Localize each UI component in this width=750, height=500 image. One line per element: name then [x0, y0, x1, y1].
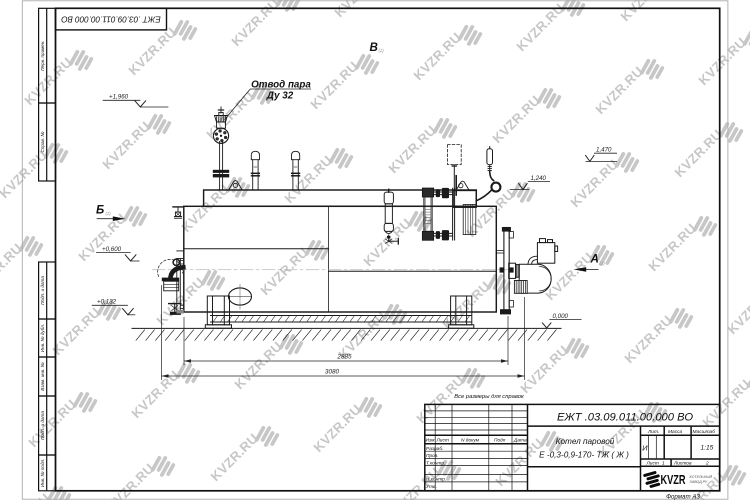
svg-text:Утв.: Утв. — [426, 484, 437, 490]
svg-text:1:15: 1:15 — [701, 445, 714, 452]
svg-text:(2): (2) — [106, 211, 112, 216]
svg-text:Листов: Листов — [673, 461, 692, 467]
svg-text:(2): (2) — [379, 48, 385, 53]
svg-text:+0,600: +0,600 — [102, 246, 122, 253]
svg-text:Инв. № дубл.: Инв. № дубл. — [40, 324, 45, 352]
svg-text:2885: 2885 — [336, 354, 352, 361]
svg-text:Пров.: Пров. — [426, 453, 439, 459]
svg-text:Инв. № подл.: Инв. № подл. — [40, 459, 45, 488]
svg-text:Дата: Дата — [513, 438, 527, 444]
svg-text:Н.контр.: Н.контр. — [426, 477, 446, 483]
svg-text:А: А — [590, 252, 599, 265]
svg-text:Разраб.: Разраб. — [426, 446, 443, 452]
svg-text:Котел паровой: Котел паровой — [556, 437, 615, 446]
svg-text:Лист: Лист — [646, 461, 659, 467]
svg-text:Подп. и дата: Подп. и дата — [40, 276, 45, 305]
svg-text:Все размеры для справок: Все размеры для справок — [454, 394, 524, 400]
svg-text:И: И — [642, 444, 648, 453]
svg-text:Лит.: Лит. — [647, 429, 659, 435]
svg-text:2: 2 — [705, 461, 709, 467]
svg-text:Взам. инв. №: Взам. инв. № — [40, 362, 45, 390]
svg-text:1: 1 — [662, 461, 665, 467]
svg-text:ЗАВОД.РУ: ЗАВОД.РУ — [690, 480, 708, 484]
svg-text:Подп. и дата: Подп. и дата — [40, 411, 45, 440]
svg-text:Ду 32: Ду 32 — [266, 90, 294, 101]
svg-text:Е -0,3-0,9-170- ТЖ ( Ж ): Е -0,3-0,9-170- ТЖ ( Ж ) — [539, 451, 629, 460]
svg-text:Масса: Масса — [668, 429, 683, 435]
svg-text:(2): (2) — [600, 261, 606, 266]
svg-text:0,000: 0,000 — [553, 313, 569, 320]
svg-text:1,240: 1,240 — [531, 175, 547, 182]
svg-text:Т.контр.: Т.контр. — [426, 460, 445, 466]
svg-text:+0,132: +0,132 — [97, 299, 117, 306]
svg-text:+1,960: +1,960 — [109, 94, 129, 101]
svg-text:N докум: N докум — [461, 438, 480, 444]
svg-text:1,470: 1,470 — [596, 147, 612, 154]
svg-text:Подп: Подп — [494, 438, 506, 444]
svg-text:В: В — [370, 41, 378, 54]
svg-text:Лист: Лист — [436, 438, 449, 444]
svg-text:KVZR: KVZR — [661, 472, 686, 487]
svg-text:Перв. примен.: Перв. примен. — [40, 40, 45, 71]
svg-text:Изм: Изм — [426, 438, 436, 444]
svg-text:Б: Б — [96, 204, 104, 217]
svg-text:ЕЖТ .03.09.011.00.000 ВО: ЕЖТ .03.09.011.00.000 ВО — [557, 412, 693, 424]
svg-text:Масштаб: Масштаб — [693, 429, 716, 435]
svg-text:Формат А3: Формат А3 — [666, 494, 700, 500]
svg-text:КОТЕЛЬНЫЙ: КОТЕЛЬНЫЙ — [690, 475, 713, 479]
svg-text:ЕЖТ .03.09.011.00.000 ВО: ЕЖТ .03.09.011.00.000 ВО — [61, 14, 161, 23]
svg-text:3080: 3080 — [325, 368, 340, 375]
svg-text:Справ. №: Справ. № — [40, 132, 45, 153]
